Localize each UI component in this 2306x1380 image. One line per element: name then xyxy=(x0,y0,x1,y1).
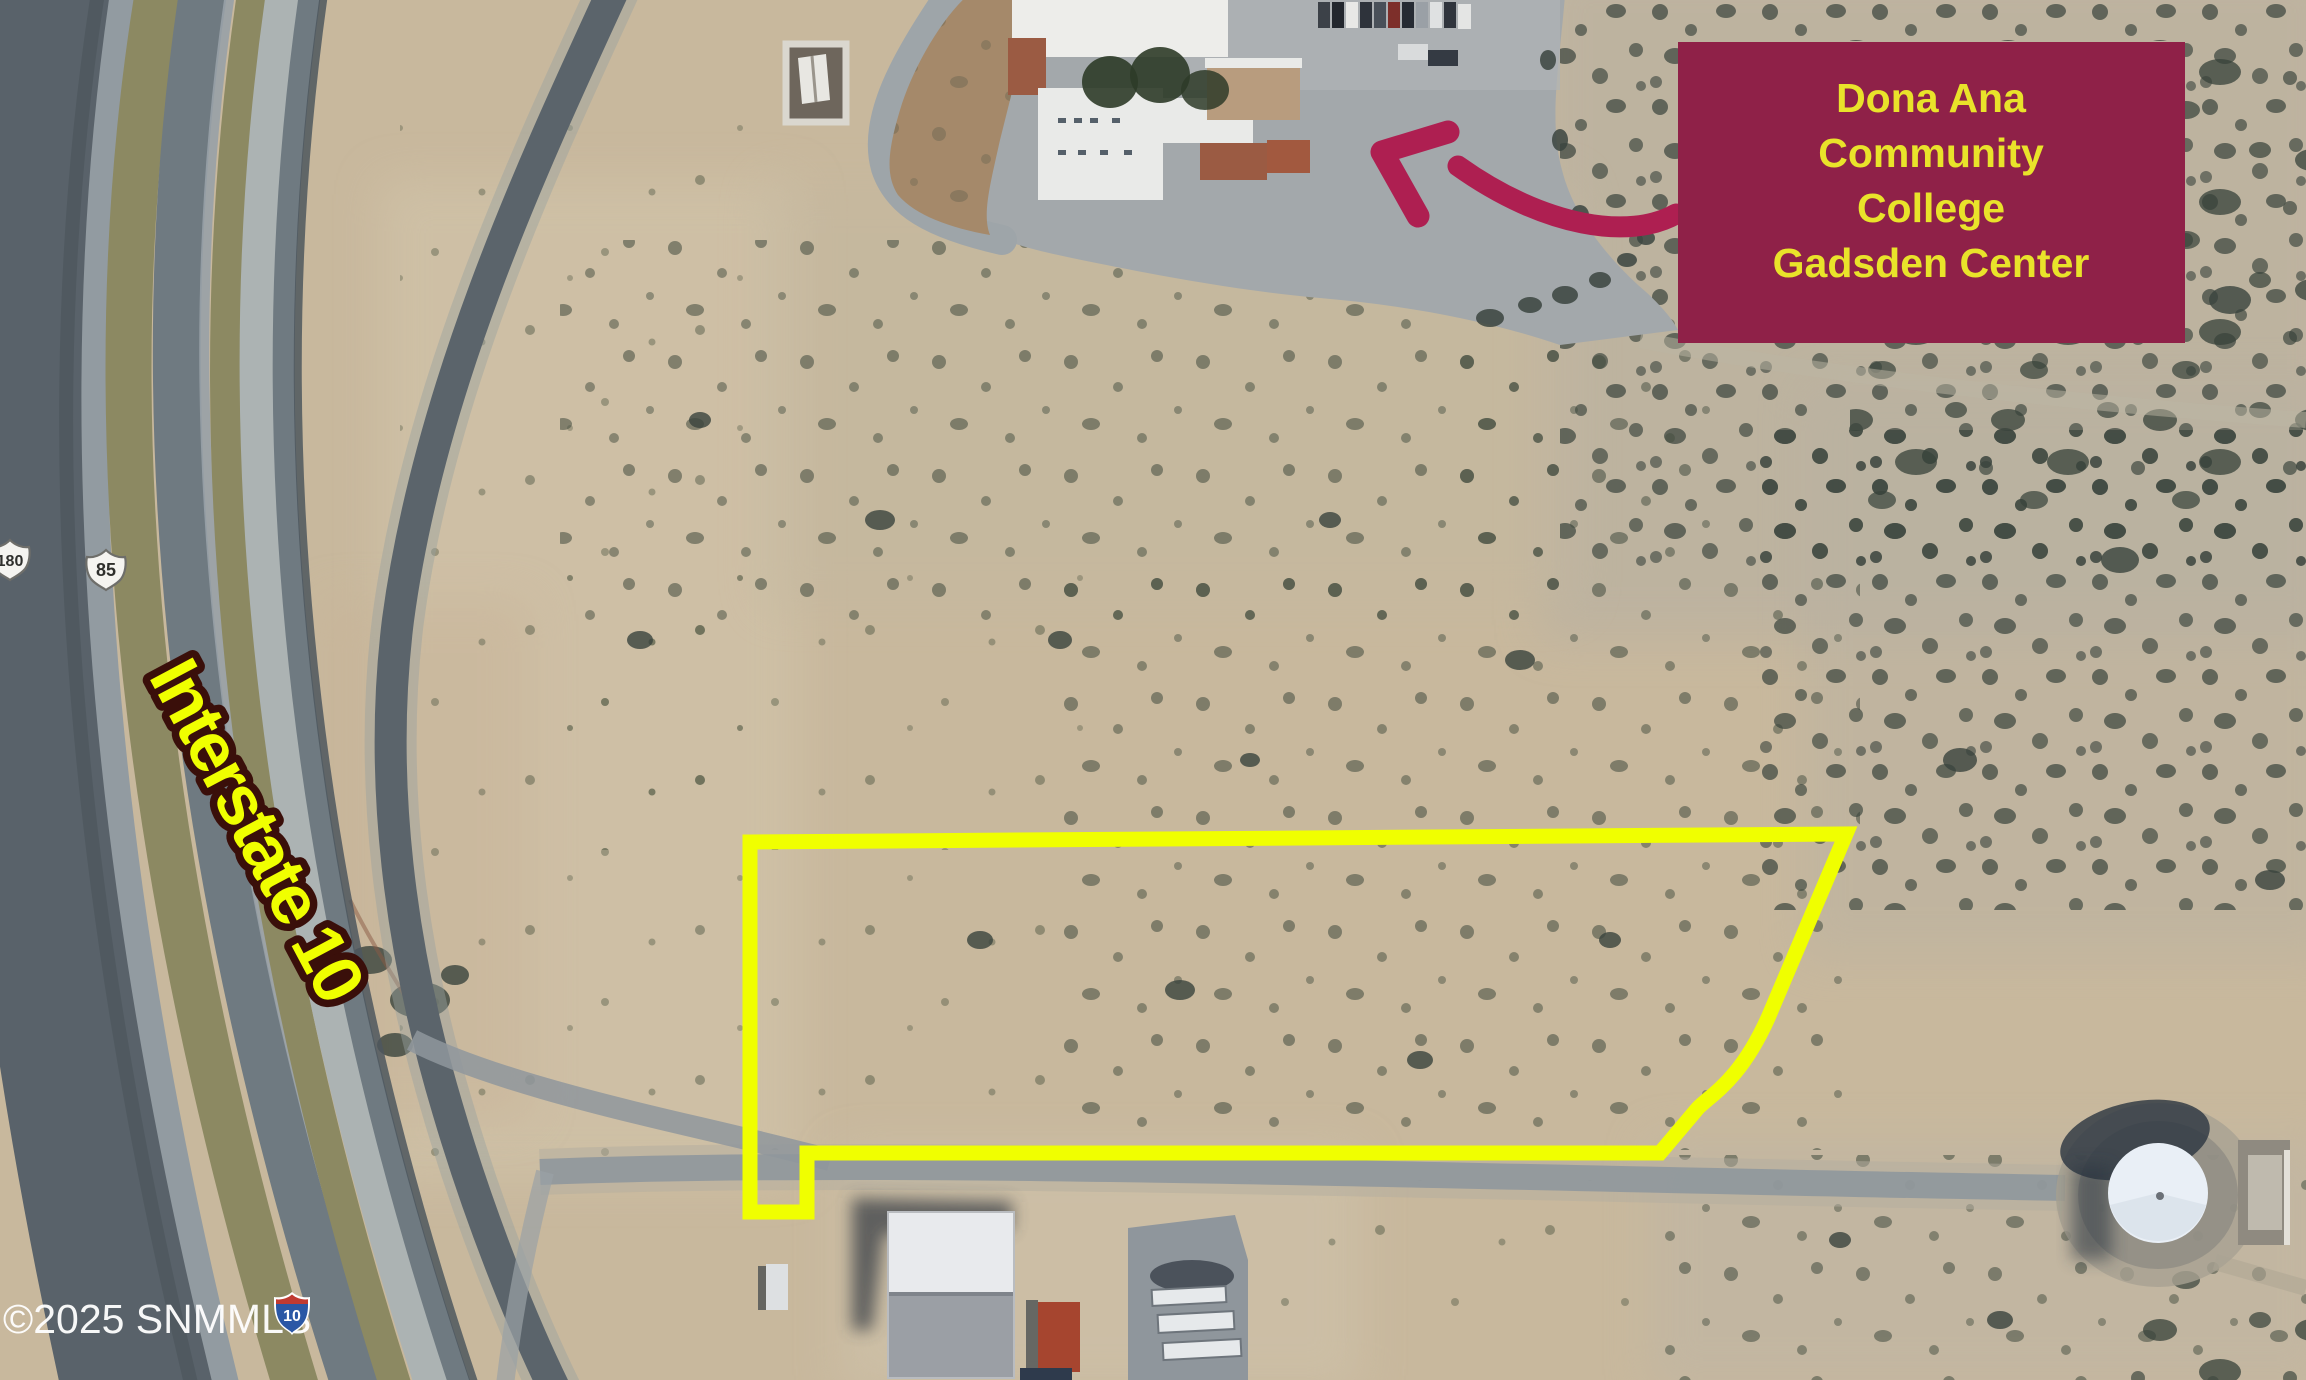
callout-line-1: Dona Ana xyxy=(1836,75,2027,121)
small-trailer xyxy=(766,1264,788,1310)
svg-text:10: 10 xyxy=(283,1308,301,1325)
red-building xyxy=(1038,1302,1080,1372)
warehouse-building xyxy=(888,1212,1014,1378)
trees xyxy=(1082,56,1138,108)
svg-text:180: 180 xyxy=(0,553,23,570)
aerial-map: Dona Ana Community College Gadsden Cente… xyxy=(0,0,2306,1380)
callout-line-3: College xyxy=(1857,185,2005,231)
aerial-map-canvas: Dona Ana Community College Gadsden Cente… xyxy=(0,0,2306,1380)
callout-line-4: Gadsden Center xyxy=(1773,240,2090,286)
svg-text:85: 85 xyxy=(96,560,116,580)
courtyard-building xyxy=(786,44,846,122)
watermark-text: ©2025 SNMMLS xyxy=(3,1296,311,1342)
callout-line-2: Community xyxy=(1818,130,2044,176)
